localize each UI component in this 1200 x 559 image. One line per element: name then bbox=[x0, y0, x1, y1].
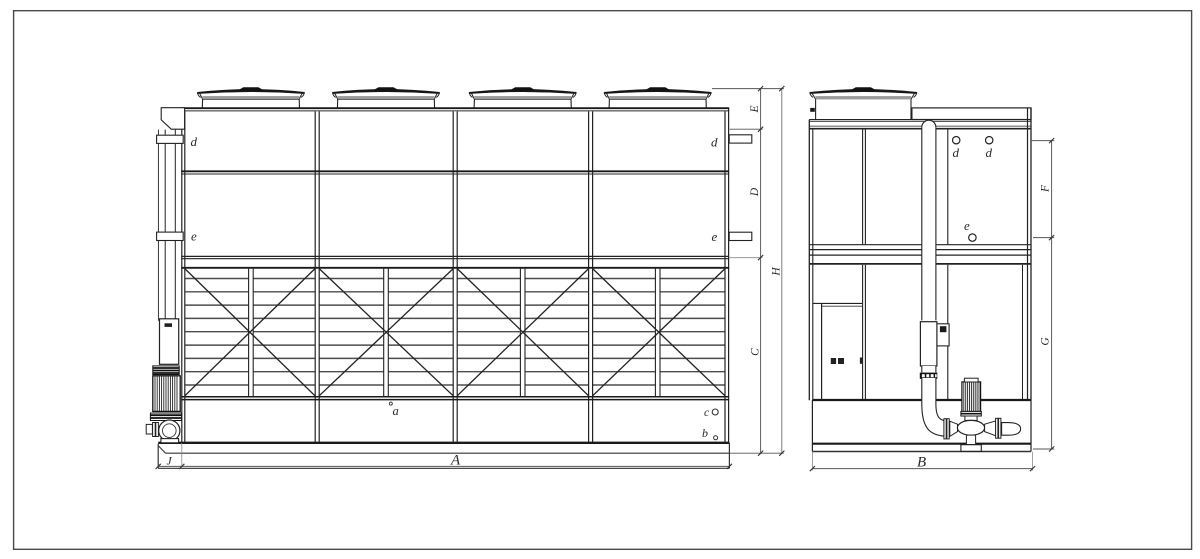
svg-text:a: a bbox=[393, 404, 399, 418]
svg-text:J: J bbox=[167, 456, 173, 468]
svg-text:A: A bbox=[450, 453, 461, 469]
svg-text:d: d bbox=[986, 145, 993, 160]
svg-text:e: e bbox=[712, 229, 718, 244]
svg-text:d: d bbox=[953, 145, 960, 160]
svg-text:F: F bbox=[1040, 184, 1052, 193]
svg-text:d: d bbox=[191, 134, 198, 149]
svg-text:e: e bbox=[964, 218, 970, 233]
svg-text:C: C bbox=[750, 348, 762, 356]
svg-text:D: D bbox=[749, 187, 761, 197]
svg-text:G: G bbox=[1040, 337, 1052, 346]
svg-text:E: E bbox=[749, 105, 761, 113]
svg-text:b: b bbox=[702, 426, 708, 440]
svg-text:c: c bbox=[704, 407, 709, 419]
svg-text:d: d bbox=[711, 135, 718, 150]
svg-text:H: H bbox=[770, 267, 782, 277]
svg-text:B: B bbox=[917, 455, 926, 471]
svg-text:e: e bbox=[191, 229, 197, 244]
